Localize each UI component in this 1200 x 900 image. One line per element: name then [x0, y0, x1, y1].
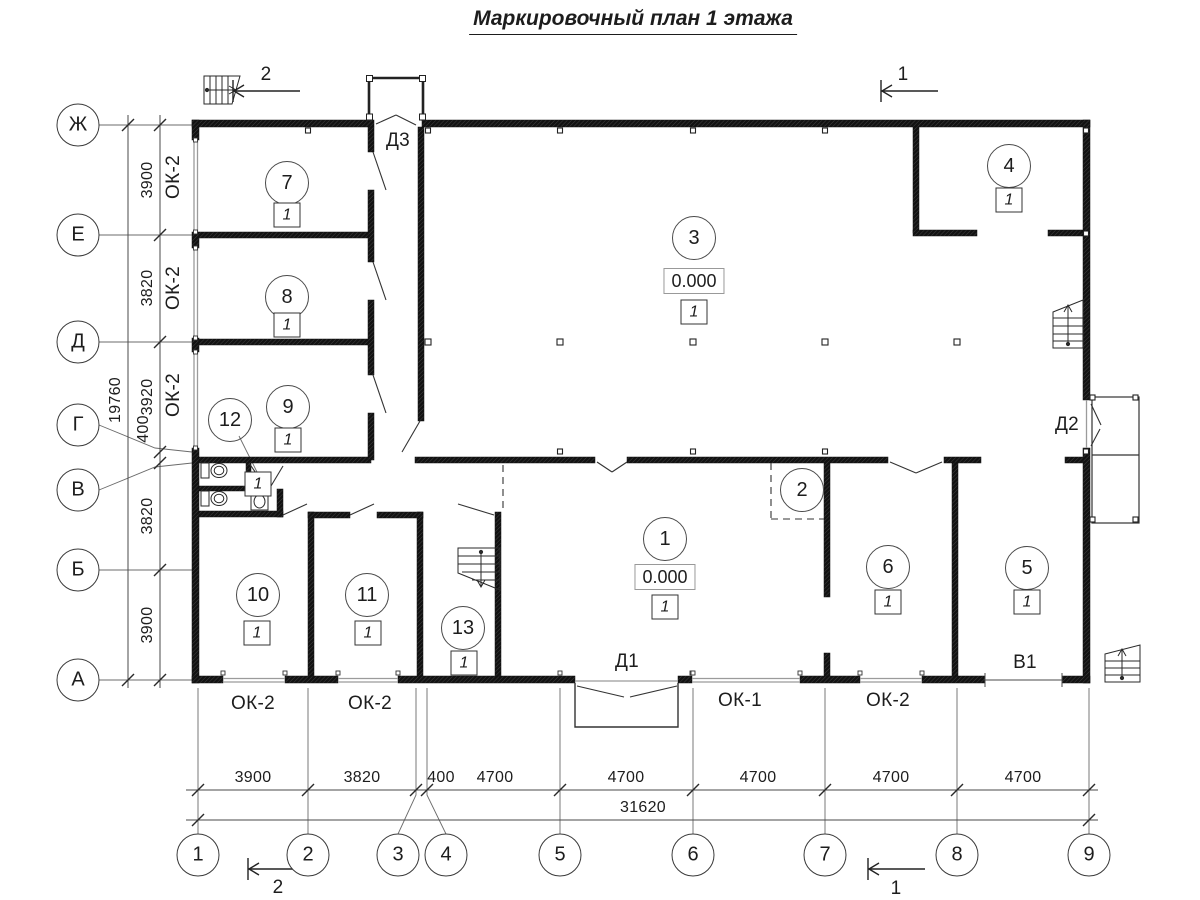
dashed-partitions [503, 463, 824, 519]
dim-left-4: 400 [135, 415, 153, 443]
room-number-9: 9 [266, 385, 310, 429]
dim-bottom-2: 3820 [344, 769, 381, 787]
room-number-5: 5 [1005, 546, 1049, 590]
window-label-ok2-bottom-3: ОК-2 [866, 690, 910, 712]
floor-type-room-5: 1 [1014, 590, 1041, 615]
axis-row-a: А [57, 659, 100, 702]
room-number-1: 1 [643, 517, 687, 561]
room-number-7: 7 [265, 161, 309, 205]
door-label-d1: Д1 [615, 651, 639, 673]
door-label-d3: Д3 [386, 130, 410, 152]
floor-type-room-8: 1 [274, 313, 301, 338]
window-label-ok2-left-2: ОК-2 [163, 266, 185, 310]
floor-plan-sheet: Маркировочный план 1 этажа Ж Е Д Г В Б А… [0, 0, 1200, 900]
floor-type-room-12: 1 [245, 472, 272, 497]
stair-icon-exterior-bottom-right [1105, 645, 1140, 682]
walls [192, 120, 1090, 683]
axis-col-6: 6 [672, 834, 715, 877]
floor-type-room-11: 1 [355, 621, 382, 646]
gate-label-v1: В1 [1013, 652, 1037, 674]
axis-row-g: Г [57, 404, 100, 447]
floor-type-room-1: 1 [652, 595, 679, 620]
window-label-ok1-bottom: ОК-1 [718, 690, 762, 712]
dim-bottom-4: 4700 [477, 769, 514, 787]
section-label-2-bottom: 2 [273, 877, 284, 899]
dim-bottom-1: 3900 [235, 769, 272, 787]
floor-type-room-7: 1 [274, 203, 301, 228]
floor-type-room-10: 1 [244, 621, 271, 646]
page-title: Маркировочный план 1 этажа [469, 7, 797, 35]
door-label-d2: Д2 [1055, 414, 1079, 436]
window-label-ok2-bottom-1: ОК-2 [231, 693, 275, 715]
section-mark-1-top [881, 80, 938, 102]
axis-row-d: Д [57, 321, 100, 364]
vestibule-top [367, 76, 426, 122]
axis-col-4: 4 [425, 834, 468, 877]
axis-col-2: 2 [287, 834, 330, 877]
stair-icon-room13 [458, 548, 500, 590]
dim-bottom-3: 400 [427, 769, 455, 787]
dim-left-3: 3920 [139, 379, 157, 416]
axis-row-zh: Ж [57, 104, 100, 147]
elevation-mark-room-3: 0.000 [663, 268, 724, 294]
floor-type-room-6: 1 [875, 590, 902, 615]
floor-type-room-13: 1 [451, 651, 478, 676]
dim-bottom-5: 4700 [608, 769, 645, 787]
floor-type-room-9: 1 [275, 428, 302, 453]
dim-bottom-total: 31620 [620, 799, 666, 817]
floor-type-room-3: 1 [681, 300, 708, 325]
room-number-11: 11 [345, 573, 389, 617]
entrance-porch-right [1092, 397, 1139, 523]
floor-type-room-4: 1 [996, 188, 1023, 213]
window-label-ok2-left-1: ОК-2 [163, 155, 185, 199]
axis-col-5: 5 [539, 834, 582, 877]
section-label-2-top: 2 [261, 64, 272, 86]
room-number-10: 10 [236, 573, 280, 617]
axis-row-b: Б [57, 549, 100, 592]
elevation-mark-room-1: 0.000 [634, 564, 695, 590]
section-mark-1-bottom [868, 858, 925, 880]
toilet-icon [201, 463, 227, 506]
section-label-1-bottom: 1 [891, 878, 902, 900]
axis-col-8: 8 [936, 834, 979, 877]
axis-row-e: Е [57, 214, 100, 257]
dim-left-2: 3820 [139, 270, 157, 307]
axis-row-v: В [57, 469, 100, 512]
dim-left-1: 3900 [139, 162, 157, 199]
window-label-ok2-bottom-2: ОК-2 [348, 693, 392, 715]
axis-col-9: 9 [1068, 834, 1111, 877]
axis-col-1: 1 [177, 834, 220, 877]
dim-bottom-6: 4700 [740, 769, 777, 787]
room-number-3: 3 [672, 216, 716, 260]
dim-left-total: 19760 [107, 377, 125, 423]
room-number-6: 6 [866, 545, 910, 589]
window-label-ok2-left-3: ОК-2 [163, 373, 185, 417]
room-number-13: 13 [441, 606, 485, 650]
dim-bottom-8: 4700 [1005, 769, 1042, 787]
stair-icon-hall-right [1053, 300, 1083, 348]
dim-left-5: 3820 [139, 498, 157, 535]
room-number-4: 4 [987, 144, 1031, 188]
room-number-12: 12 [208, 398, 252, 442]
axis-col-7: 7 [804, 834, 847, 877]
plan-linework [0, 0, 1200, 900]
room-number-2: 2 [780, 468, 824, 512]
section-label-1-top: 1 [898, 64, 909, 86]
axis-col-3: 3 [377, 834, 420, 877]
dim-bottom-7: 4700 [873, 769, 910, 787]
dim-left-6: 3900 [139, 607, 157, 644]
